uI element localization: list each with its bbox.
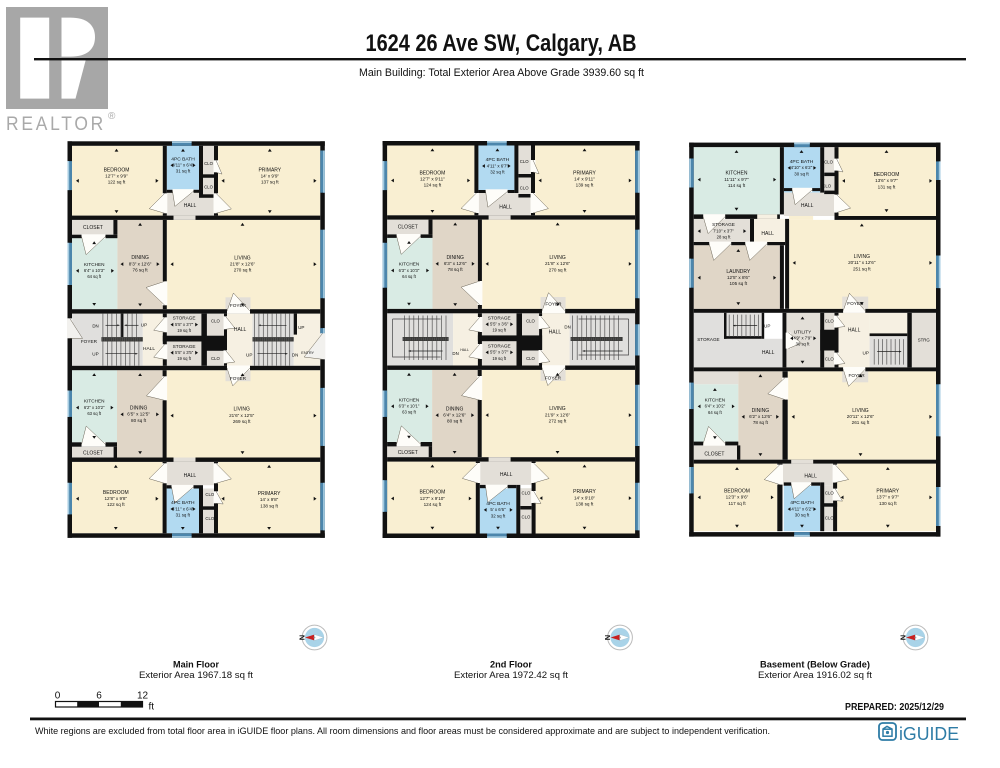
svg-text:CLOSET: CLOSET bbox=[83, 225, 103, 231]
svg-text:HALL: HALL bbox=[549, 329, 562, 335]
svg-text:CLO: CLO bbox=[520, 159, 529, 164]
svg-text:4PC BATH: 4PC BATH bbox=[790, 159, 814, 165]
svg-text:20'11" x 12'6": 20'11" x 12'6" bbox=[847, 414, 875, 419]
svg-text:6'4" x 10'2": 6'4" x 10'2" bbox=[705, 404, 726, 409]
svg-text:CLO: CLO bbox=[822, 184, 831, 189]
svg-text:CLO: CLO bbox=[825, 516, 834, 521]
svg-text:131 sq ft: 131 sq ft bbox=[878, 184, 896, 189]
svg-text:HALL: HALL bbox=[804, 473, 817, 479]
svg-text:STORAGE: STORAGE bbox=[712, 222, 735, 227]
svg-text:4PC BATH: 4PC BATH bbox=[171, 500, 195, 506]
svg-text:CLO: CLO bbox=[204, 184, 213, 189]
svg-text:HALL: HALL bbox=[460, 348, 469, 352]
svg-text:122 sq ft: 122 sq ft bbox=[108, 180, 126, 185]
svg-text:12'5" x 8'6": 12'5" x 8'6" bbox=[727, 275, 750, 280]
svg-text:UP: UP bbox=[141, 322, 147, 327]
svg-text:CLO: CLO bbox=[521, 491, 530, 496]
svg-text:6'3" x 10'1": 6'3" x 10'1" bbox=[399, 404, 420, 409]
svg-text:HALL: HALL bbox=[499, 205, 512, 211]
svg-text:DN: DN bbox=[292, 352, 298, 357]
svg-text:31 sq ft: 31 sq ft bbox=[176, 512, 191, 517]
svg-text:CLO: CLO bbox=[825, 490, 834, 495]
svg-text:14' x 9'11": 14' x 9'11" bbox=[574, 177, 595, 182]
svg-text:KITCHEN: KITCHEN bbox=[726, 171, 748, 177]
svg-text:6: 6 bbox=[96, 691, 102, 702]
svg-text:DN: DN bbox=[452, 351, 458, 356]
svg-text:LIVING: LIVING bbox=[233, 407, 250, 413]
svg-text:12'3" x 9'6": 12'3" x 9'6" bbox=[726, 495, 749, 500]
svg-text:FOYER: FOYER bbox=[545, 302, 562, 307]
svg-text:Exterior Area 1916.02 sq ft: Exterior Area 1916.02 sq ft bbox=[758, 670, 873, 680]
svg-text:12: 12 bbox=[137, 691, 149, 702]
svg-text:12'7" x 9'9": 12'7" x 9'9" bbox=[105, 174, 128, 179]
svg-text:UP: UP bbox=[246, 352, 252, 357]
svg-text:White regions are excluded fro: White regions are excluded from total fl… bbox=[35, 726, 770, 737]
svg-text:63 sq ft: 63 sq ft bbox=[402, 410, 417, 415]
svg-text:PRIMARY: PRIMARY bbox=[573, 170, 596, 176]
svg-text:139 sq ft: 139 sq ft bbox=[576, 183, 594, 188]
svg-text:DINING: DINING bbox=[752, 408, 770, 414]
svg-text:64 sq ft: 64 sq ft bbox=[402, 274, 417, 279]
svg-text:CLOSET: CLOSET bbox=[83, 451, 103, 457]
svg-text:CLO: CLO bbox=[825, 356, 834, 361]
svg-text:138 sq ft: 138 sq ft bbox=[260, 503, 278, 508]
svg-text:4PC BATH: 4PC BATH bbox=[486, 157, 510, 163]
svg-text:122 sq ft: 122 sq ft bbox=[107, 502, 125, 507]
svg-text:19 sq ft: 19 sq ft bbox=[492, 356, 507, 361]
svg-text:UP: UP bbox=[92, 352, 98, 357]
svg-text:STORAGE: STORAGE bbox=[488, 315, 511, 320]
svg-text:STORAGE: STORAGE bbox=[173, 316, 196, 321]
svg-text:CLO: CLO bbox=[211, 356, 220, 361]
svg-text:HALL: HALL bbox=[143, 346, 155, 352]
svg-text:270 sq ft: 270 sq ft bbox=[234, 268, 252, 273]
svg-text:CLO: CLO bbox=[205, 492, 214, 497]
svg-text:261 sq ft: 261 sq ft bbox=[852, 420, 870, 425]
svg-text:20'11" x 12'6": 20'11" x 12'6" bbox=[848, 260, 876, 265]
svg-text:14' x 9'8": 14' x 9'8" bbox=[260, 497, 279, 502]
svg-text:63 sq ft: 63 sq ft bbox=[87, 411, 102, 416]
svg-text:124 sq ft: 124 sq ft bbox=[424, 502, 442, 507]
svg-text:6'3" x 10'3": 6'3" x 10'3" bbox=[399, 268, 420, 273]
svg-text:KITCHEN: KITCHEN bbox=[84, 399, 105, 404]
svg-text:5' x 6'6": 5' x 6'6" bbox=[490, 507, 506, 512]
svg-text:BEDROOM: BEDROOM bbox=[724, 489, 750, 495]
svg-text:UP: UP bbox=[298, 325, 304, 330]
svg-text:DINING: DINING bbox=[130, 406, 148, 412]
svg-text:130 sq ft: 130 sq ft bbox=[879, 501, 897, 506]
svg-text:12'7" x 9'11": 12'7" x 9'11" bbox=[420, 177, 445, 182]
svg-text:LIVING: LIVING bbox=[234, 255, 251, 261]
svg-text:N: N bbox=[297, 635, 306, 640]
svg-text:N: N bbox=[898, 635, 907, 640]
svg-text:UTILITY: UTILITY bbox=[794, 329, 812, 334]
svg-text:LIVING: LIVING bbox=[549, 255, 566, 261]
svg-text:LIVING: LIVING bbox=[852, 408, 869, 414]
svg-text:CLO: CLO bbox=[205, 516, 214, 521]
svg-text:FOYER: FOYER bbox=[849, 373, 866, 378]
svg-text:HALL: HALL bbox=[848, 328, 861, 334]
svg-text:CLO: CLO bbox=[526, 356, 535, 361]
svg-text:BEDROOM: BEDROOM bbox=[104, 167, 130, 173]
svg-text:32 sq ft: 32 sq ft bbox=[490, 169, 505, 174]
svg-text:STORAGE: STORAGE bbox=[173, 344, 196, 349]
svg-text:64 sq ft: 64 sq ft bbox=[87, 274, 102, 279]
svg-text:KITCHEN: KITCHEN bbox=[399, 262, 420, 267]
svg-text:12'8" x 9'8": 12'8" x 9'8" bbox=[104, 496, 127, 501]
svg-text:FOYER: FOYER bbox=[81, 339, 98, 344]
svg-text:78 sq ft: 78 sq ft bbox=[448, 267, 464, 272]
svg-text:iGUIDE: iGUIDE bbox=[899, 723, 959, 744]
svg-text:19 sq ft: 19 sq ft bbox=[177, 328, 192, 333]
svg-text:21'9" x 12'6": 21'9" x 12'6" bbox=[545, 412, 571, 417]
svg-text:KITCHEN: KITCHEN bbox=[84, 262, 105, 267]
svg-text:117 sq ft: 117 sq ft bbox=[728, 501, 746, 506]
svg-text:UP: UP bbox=[863, 351, 869, 356]
svg-text:137 sq ft: 137 sq ft bbox=[261, 180, 279, 185]
svg-text:28 sq ft: 28 sq ft bbox=[717, 235, 732, 240]
svg-text:BEDROOM: BEDROOM bbox=[419, 170, 445, 176]
svg-text:270 sq ft: 270 sq ft bbox=[549, 267, 567, 272]
svg-text:11'11" x 9'7": 11'11" x 9'7" bbox=[724, 177, 749, 182]
svg-text:DINING: DINING bbox=[446, 255, 464, 261]
svg-text:80 sq ft: 80 sq ft bbox=[131, 418, 147, 423]
svg-text:HALL: HALL bbox=[762, 350, 775, 356]
svg-text:CLO: CLO bbox=[521, 514, 530, 519]
svg-text:5'5" x 3'7": 5'5" x 3'7" bbox=[490, 350, 509, 355]
svg-text:64 sq ft: 64 sq ft bbox=[708, 410, 723, 415]
svg-text:N: N bbox=[603, 635, 612, 640]
svg-text:4PC BATH: 4PC BATH bbox=[171, 156, 195, 162]
svg-text:31 sq ft: 31 sq ft bbox=[176, 169, 191, 174]
svg-text:4'9" x 7'9": 4'9" x 7'9" bbox=[793, 336, 812, 341]
svg-text:5'5" x 3'6": 5'5" x 3'6" bbox=[490, 322, 509, 327]
svg-text:CLO: CLO bbox=[520, 186, 529, 191]
svg-text:36 sq ft: 36 sq ft bbox=[796, 342, 811, 347]
svg-text:STRG: STRG bbox=[918, 338, 931, 343]
svg-text:BEDROOM: BEDROOM bbox=[419, 490, 445, 496]
svg-text:19 sq ft: 19 sq ft bbox=[177, 356, 192, 361]
svg-text:HALL: HALL bbox=[801, 203, 814, 209]
svg-text:PREPARED: 2025/12/29: PREPARED: 2025/12/29 bbox=[845, 702, 944, 713]
svg-text:FOYER: FOYER bbox=[230, 376, 247, 381]
svg-text:114 sq ft: 114 sq ft bbox=[728, 183, 746, 188]
svg-text:ft: ft bbox=[149, 702, 155, 713]
svg-text:6'3" x 12'6": 6'3" x 12'6" bbox=[444, 261, 467, 266]
svg-text:5'5" x 3'5": 5'5" x 3'5" bbox=[175, 350, 194, 355]
svg-text:4'11" x 6'7": 4'11" x 6'7" bbox=[487, 163, 509, 168]
svg-text:LAUNDRY: LAUNDRY bbox=[726, 269, 750, 275]
svg-text:4'10" x 6'2": 4'10" x 6'2" bbox=[791, 165, 813, 170]
svg-text:CLO: CLO bbox=[526, 318, 535, 323]
svg-text:272 sq ft: 272 sq ft bbox=[549, 419, 567, 424]
svg-text:4'11" x 6'4": 4'11" x 6'4" bbox=[172, 163, 194, 168]
svg-text:Main Building: Total Exterior: Main Building: Total Exterior Area Above… bbox=[359, 67, 644, 79]
svg-text:STORAGE: STORAGE bbox=[697, 337, 719, 342]
svg-text:BEDROOM: BEDROOM bbox=[874, 172, 900, 178]
svg-text:CLO: CLO bbox=[204, 161, 213, 166]
svg-text:KITCHEN: KITCHEN bbox=[399, 397, 420, 402]
svg-text:1624 26 Ave SW, Calgary, AB: 1624 26 Ave SW, Calgary, AB bbox=[366, 30, 637, 57]
svg-text:105 sq ft: 105 sq ft bbox=[729, 281, 747, 286]
svg-text:LIVING: LIVING bbox=[549, 406, 566, 412]
svg-text:13'7" x 9'7": 13'7" x 9'7" bbox=[876, 495, 899, 500]
svg-text:21'6" x 12'5": 21'6" x 12'5" bbox=[229, 413, 255, 418]
svg-text:21'8" x 12'6": 21'8" x 12'6" bbox=[545, 261, 571, 266]
svg-text:6'2" x 10'2": 6'2" x 10'2" bbox=[84, 405, 105, 410]
svg-text:HALL: HALL bbox=[500, 472, 513, 478]
svg-text:30 sq ft: 30 sq ft bbox=[795, 513, 810, 518]
svg-text:80 sq ft: 80 sq ft bbox=[447, 419, 463, 424]
svg-text:HALL: HALL bbox=[234, 327, 247, 333]
svg-text:124 sq ft: 124 sq ft bbox=[424, 183, 442, 188]
svg-text:14' x 9'9": 14' x 9'9" bbox=[261, 174, 280, 179]
svg-text:LIVING: LIVING bbox=[854, 254, 871, 260]
svg-text:PRIMARY: PRIMARY bbox=[258, 167, 281, 173]
svg-text:HALL: HALL bbox=[761, 231, 774, 237]
svg-text:HALL: HALL bbox=[184, 473, 197, 479]
svg-text:21'8" x 12'6": 21'8" x 12'6" bbox=[230, 262, 256, 267]
svg-text:DN: DN bbox=[564, 324, 570, 329]
svg-text:6'4" x 12'6": 6'4" x 12'6" bbox=[443, 413, 466, 418]
svg-text:PRIMARY: PRIMARY bbox=[876, 489, 899, 495]
svg-text:STORAGE: STORAGE bbox=[488, 344, 511, 349]
svg-text:PRIMARY: PRIMARY bbox=[258, 491, 281, 497]
svg-text:14' x 9'10": 14' x 9'10" bbox=[574, 495, 595, 500]
svg-text:BEDROOM: BEDROOM bbox=[103, 490, 129, 496]
svg-text:CLO: CLO bbox=[211, 319, 220, 324]
svg-text:6'2" x 12'6": 6'2" x 12'6" bbox=[749, 414, 772, 419]
svg-text:DN: DN bbox=[92, 323, 98, 328]
svg-text:KITCHEN: KITCHEN bbox=[705, 398, 726, 403]
svg-text:269 sq ft: 269 sq ft bbox=[233, 419, 251, 424]
svg-text:13'6" x 9'7": 13'6" x 9'7" bbox=[875, 178, 898, 183]
svg-text:7'10" x 3'7": 7'10" x 3'7" bbox=[713, 228, 734, 233]
svg-text:Basement (Below Grade): Basement (Below Grade) bbox=[760, 660, 870, 670]
svg-text:CLOSET: CLOSET bbox=[704, 452, 724, 458]
svg-text:32 sq ft: 32 sq ft bbox=[491, 513, 506, 518]
svg-text:4PC BATH: 4PC BATH bbox=[790, 500, 814, 506]
svg-text:8'3" x 12'6": 8'3" x 12'6" bbox=[129, 261, 152, 266]
svg-text:6'4" x 10'3": 6'4" x 10'3" bbox=[84, 268, 105, 273]
svg-text:DINING: DINING bbox=[446, 406, 464, 412]
svg-text:CLOSET: CLOSET bbox=[398, 450, 418, 456]
svg-text:DINING: DINING bbox=[131, 255, 149, 261]
svg-text:4'11" x 6'4": 4'11" x 6'4" bbox=[172, 506, 194, 511]
svg-text:6'5" x 12'5": 6'5" x 12'5" bbox=[127, 412, 150, 417]
svg-text:REALTOR: REALTOR bbox=[6, 114, 106, 135]
svg-text:PRIMARY: PRIMARY bbox=[573, 489, 596, 495]
svg-text:5'5" x 3'7": 5'5" x 3'7" bbox=[175, 322, 194, 327]
svg-text:CLOSET: CLOSET bbox=[398, 225, 418, 231]
svg-text:Exterior Area 1967.18 sq ft: Exterior Area 1967.18 sq ft bbox=[139, 670, 254, 680]
svg-text:251 sq ft: 251 sq ft bbox=[853, 266, 871, 271]
svg-text:UP: UP bbox=[764, 324, 770, 329]
svg-text:4PC BATH: 4PC BATH bbox=[486, 501, 510, 507]
svg-text:2nd Floor: 2nd Floor bbox=[490, 660, 533, 670]
svg-text:30 sq ft: 30 sq ft bbox=[794, 171, 809, 176]
svg-text:ENTRY: ENTRY bbox=[301, 351, 314, 355]
svg-text:CLO: CLO bbox=[824, 160, 833, 165]
svg-text:76 sq ft: 76 sq ft bbox=[133, 268, 149, 273]
svg-text:4'11" x 6'2": 4'11" x 6'2" bbox=[791, 506, 813, 511]
svg-text:19 sq ft: 19 sq ft bbox=[492, 328, 507, 333]
svg-text:Exterior Area 1972.42 sq ft: Exterior Area 1972.42 sq ft bbox=[454, 670, 569, 680]
svg-text:78 sq ft: 78 sq ft bbox=[753, 420, 769, 425]
svg-text:FOYER: FOYER bbox=[545, 375, 562, 380]
svg-text:®: ® bbox=[108, 111, 116, 122]
svg-text:138 sq ft: 138 sq ft bbox=[576, 502, 594, 507]
svg-text:12'7" x 9'10": 12'7" x 9'10" bbox=[420, 496, 446, 501]
svg-text:HALL: HALL bbox=[184, 203, 197, 209]
svg-text:Main Floor: Main Floor bbox=[173, 660, 219, 670]
svg-text:0: 0 bbox=[55, 691, 61, 702]
svg-text:CLO: CLO bbox=[825, 319, 834, 324]
